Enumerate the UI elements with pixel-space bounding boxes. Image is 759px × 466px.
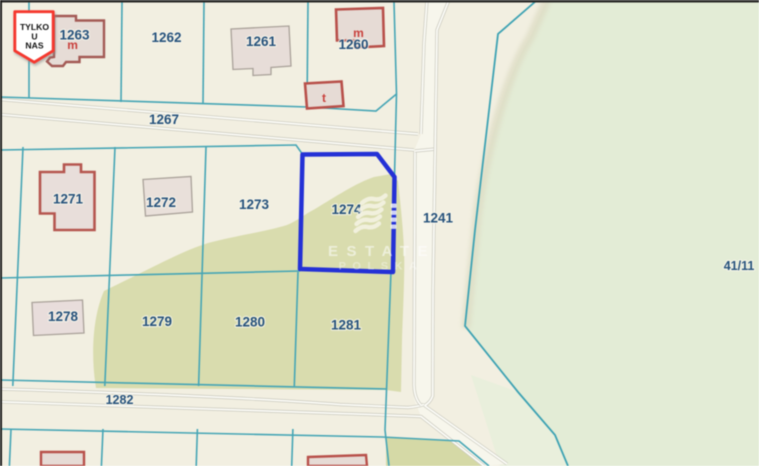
svg-text:1241: 1241 (423, 211, 454, 226)
svg-text:1272: 1272 (146, 195, 176, 210)
svg-text:m: m (67, 38, 78, 52)
svg-text:t: t (322, 91, 326, 105)
svg-text:ESTATE: ESTATE (328, 243, 436, 260)
svg-text:1279: 1279 (142, 314, 172, 329)
svg-text:1261: 1261 (246, 34, 277, 49)
svg-text:1282: 1282 (106, 393, 134, 407)
svg-text:POLSKA: POLSKA (339, 261, 424, 273)
svg-text:1260: 1260 (338, 37, 368, 52)
svg-text:1278: 1278 (48, 309, 79, 324)
svg-text:1262: 1262 (151, 30, 181, 45)
svg-text:1271: 1271 (53, 192, 84, 207)
svg-text:1273: 1273 (239, 197, 270, 212)
svg-text:41/11: 41/11 (724, 259, 755, 273)
svg-text:1280: 1280 (235, 315, 265, 330)
svg-text:1281: 1281 (331, 318, 362, 333)
svg-text:TYLKO: TYLKO (20, 22, 49, 32)
svg-text:NAS: NAS (25, 41, 43, 51)
svg-text:1267: 1267 (149, 112, 179, 127)
